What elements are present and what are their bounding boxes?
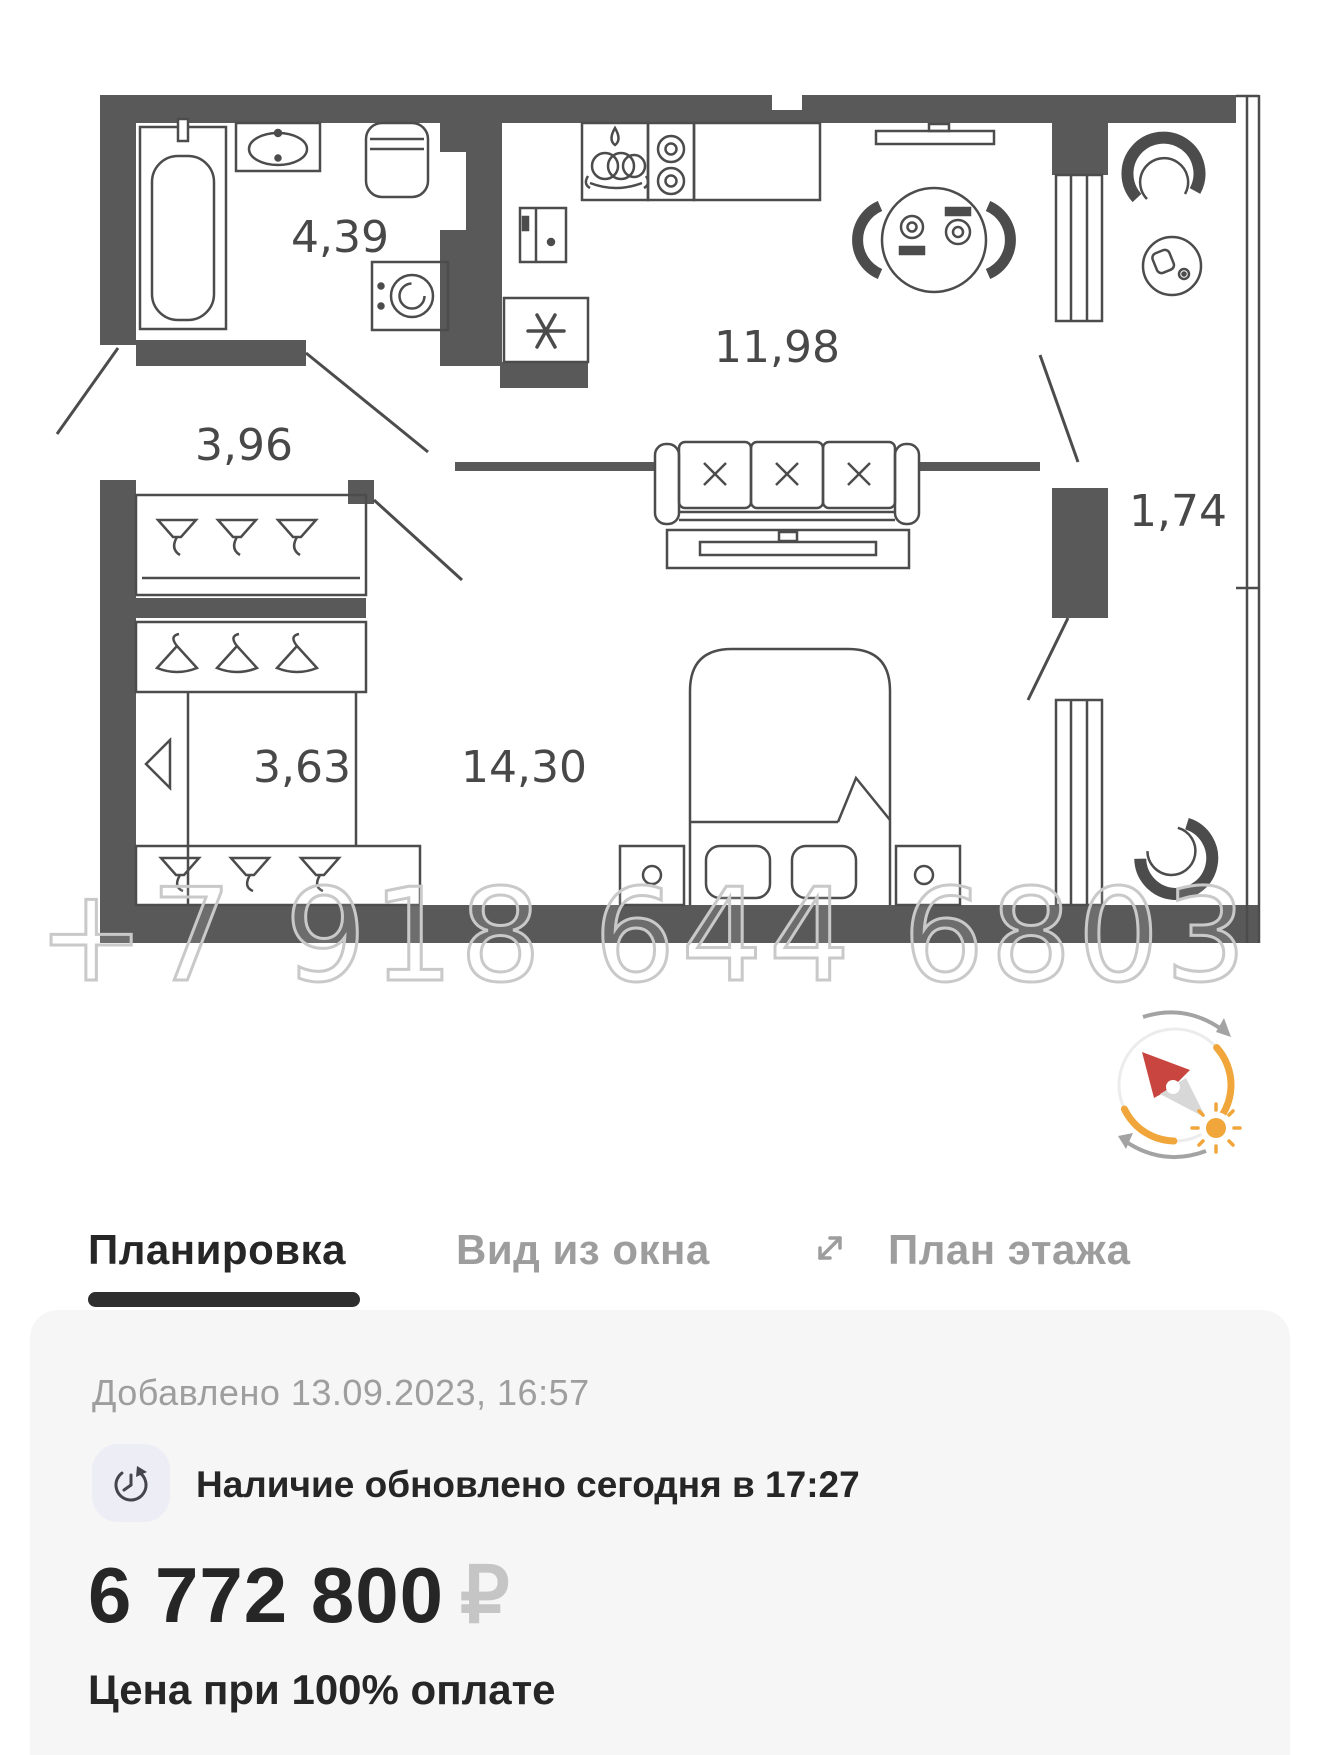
armchair-icon: [1127, 138, 1199, 199]
wall-lamp-icon: [146, 740, 170, 788]
dish-rack-icon: [582, 123, 648, 200]
price: 6 772 800₽: [88, 1550, 511, 1641]
compass-icon[interactable]: [1096, 1006, 1254, 1164]
area-label-bathroom: 4,39: [291, 212, 389, 263]
stove-icon: [648, 123, 694, 200]
price-value: 6 772 800: [88, 1551, 444, 1639]
door-swing-lines: [57, 348, 1078, 700]
area-label-balcony: 1,74: [1129, 486, 1227, 537]
coat-hanger-rack-icon: [136, 622, 366, 692]
floor-plan: 4,39 3,96 11,98 1,74 3,63 14,30 +7 918 6…: [0, 0, 1320, 1175]
tv-icon: [876, 124, 994, 144]
area-label-kitchen-living: 11,98: [714, 322, 840, 373]
availability-badge: [92, 1444, 170, 1522]
area-label-bedroom: 14,30: [461, 742, 587, 793]
tab-plan-etazha[interactable]: План этажа: [888, 1226, 1130, 1274]
sun-icon: [1192, 1104, 1240, 1152]
expand-icon[interactable]: [806, 1224, 854, 1272]
hanger-rack-icon: [136, 495, 366, 595]
wall-notch: [772, 95, 802, 110]
area-label-wardrobe: 3,63: [253, 742, 351, 793]
side-table-icon: [1143, 237, 1201, 295]
clock-refresh-icon: [107, 1459, 155, 1507]
fridge-icon: [520, 208, 566, 262]
price-note: Цена при 100% оплате: [88, 1666, 556, 1714]
tab-planirovka[interactable]: Планировка: [88, 1226, 346, 1274]
listing-info-panel: Добавлено 13.09.2023, 16:57 Наличие обно…: [30, 1310, 1290, 1755]
watermark-phone: +7 918 644 6803: [37, 862, 1252, 1011]
ruble-sign: ₽: [460, 1551, 511, 1639]
availability-text: Наличие обновлено сегодня в 17:27: [196, 1464, 860, 1506]
wall-notch: [440, 152, 466, 230]
sink-icon: [236, 123, 320, 171]
active-tab-underline: [88, 1292, 360, 1307]
water-heater-icon: [366, 123, 428, 197]
tv-stand-icon: [667, 530, 909, 568]
added-date: Добавлено 13.09.2023, 16:57: [92, 1372, 590, 1414]
freezer-snowflake-icon: [504, 298, 588, 362]
tab-vid-iz-okna[interactable]: Вид из окна: [456, 1226, 710, 1274]
bathtub-icon: [140, 119, 226, 329]
washing-machine-icon: [372, 262, 448, 330]
sofa-icon: [655, 442, 919, 524]
kitchen-counter: [694, 123, 820, 200]
area-label-hallway: 3,96: [195, 420, 293, 471]
dining-table-icon: [858, 188, 1011, 292]
